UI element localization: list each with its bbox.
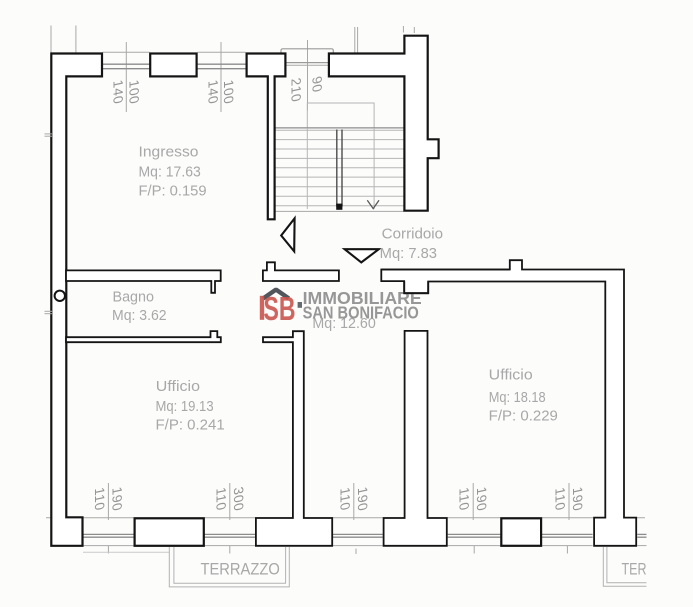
svg-text:Mq: 18.18: Mq: 18.18 [489,390,546,406]
svg-text:140: 140 [205,78,220,105]
svg-text:Mq: 17.63: Mq: 17.63 [139,165,201,181]
svg-text:110: 110 [337,486,352,512]
svg-text:300: 300 [231,485,246,512]
svg-text:100: 100 [126,78,141,105]
svg-text:190: 190 [474,485,489,512]
svg-text:Ufficio: Ufficio [156,379,200,395]
svg-text:TER: TER [622,560,647,579]
svg-text:Corridoio: Corridoio [382,227,443,243]
svg-text:F/P: 0.159: F/P: 0.159 [139,183,207,199]
svg-text:140: 140 [111,78,126,105]
svg-text:Bagno: Bagno [113,289,155,305]
svg-text:100: 100 [221,78,236,105]
svg-text:90: 90 [310,75,325,94]
svg-text:Ufficio: Ufficio [489,368,533,384]
svg-text:190: 190 [355,485,370,512]
svg-text:F/P: 0.241: F/P: 0.241 [156,418,225,434]
svg-text:SB: SB [264,291,296,328]
svg-text:Mq: 3.62: Mq: 3.62 [112,308,167,324]
svg-text:Mq: 7.83: Mq: 7.83 [380,246,437,262]
svg-text:Ingresso: Ingresso [139,145,199,161]
svg-text:190: 190 [570,485,585,512]
svg-text:110: 110 [553,486,568,512]
svg-text:210: 210 [289,76,304,103]
svg-text:Mq: 19.13: Mq: 19.13 [156,399,214,415]
svg-text:F/P: 0.229: F/P: 0.229 [489,409,558,425]
svg-text:110: 110 [213,486,228,512]
svg-text:190: 190 [109,485,124,512]
svg-text:TERRAZZO: TERRAZZO [201,560,280,579]
svg-text:110: 110 [92,486,107,512]
svg-text:SAN BONIFACIO: SAN BONIFACIO [303,303,419,323]
svg-text:110: 110 [457,486,472,512]
